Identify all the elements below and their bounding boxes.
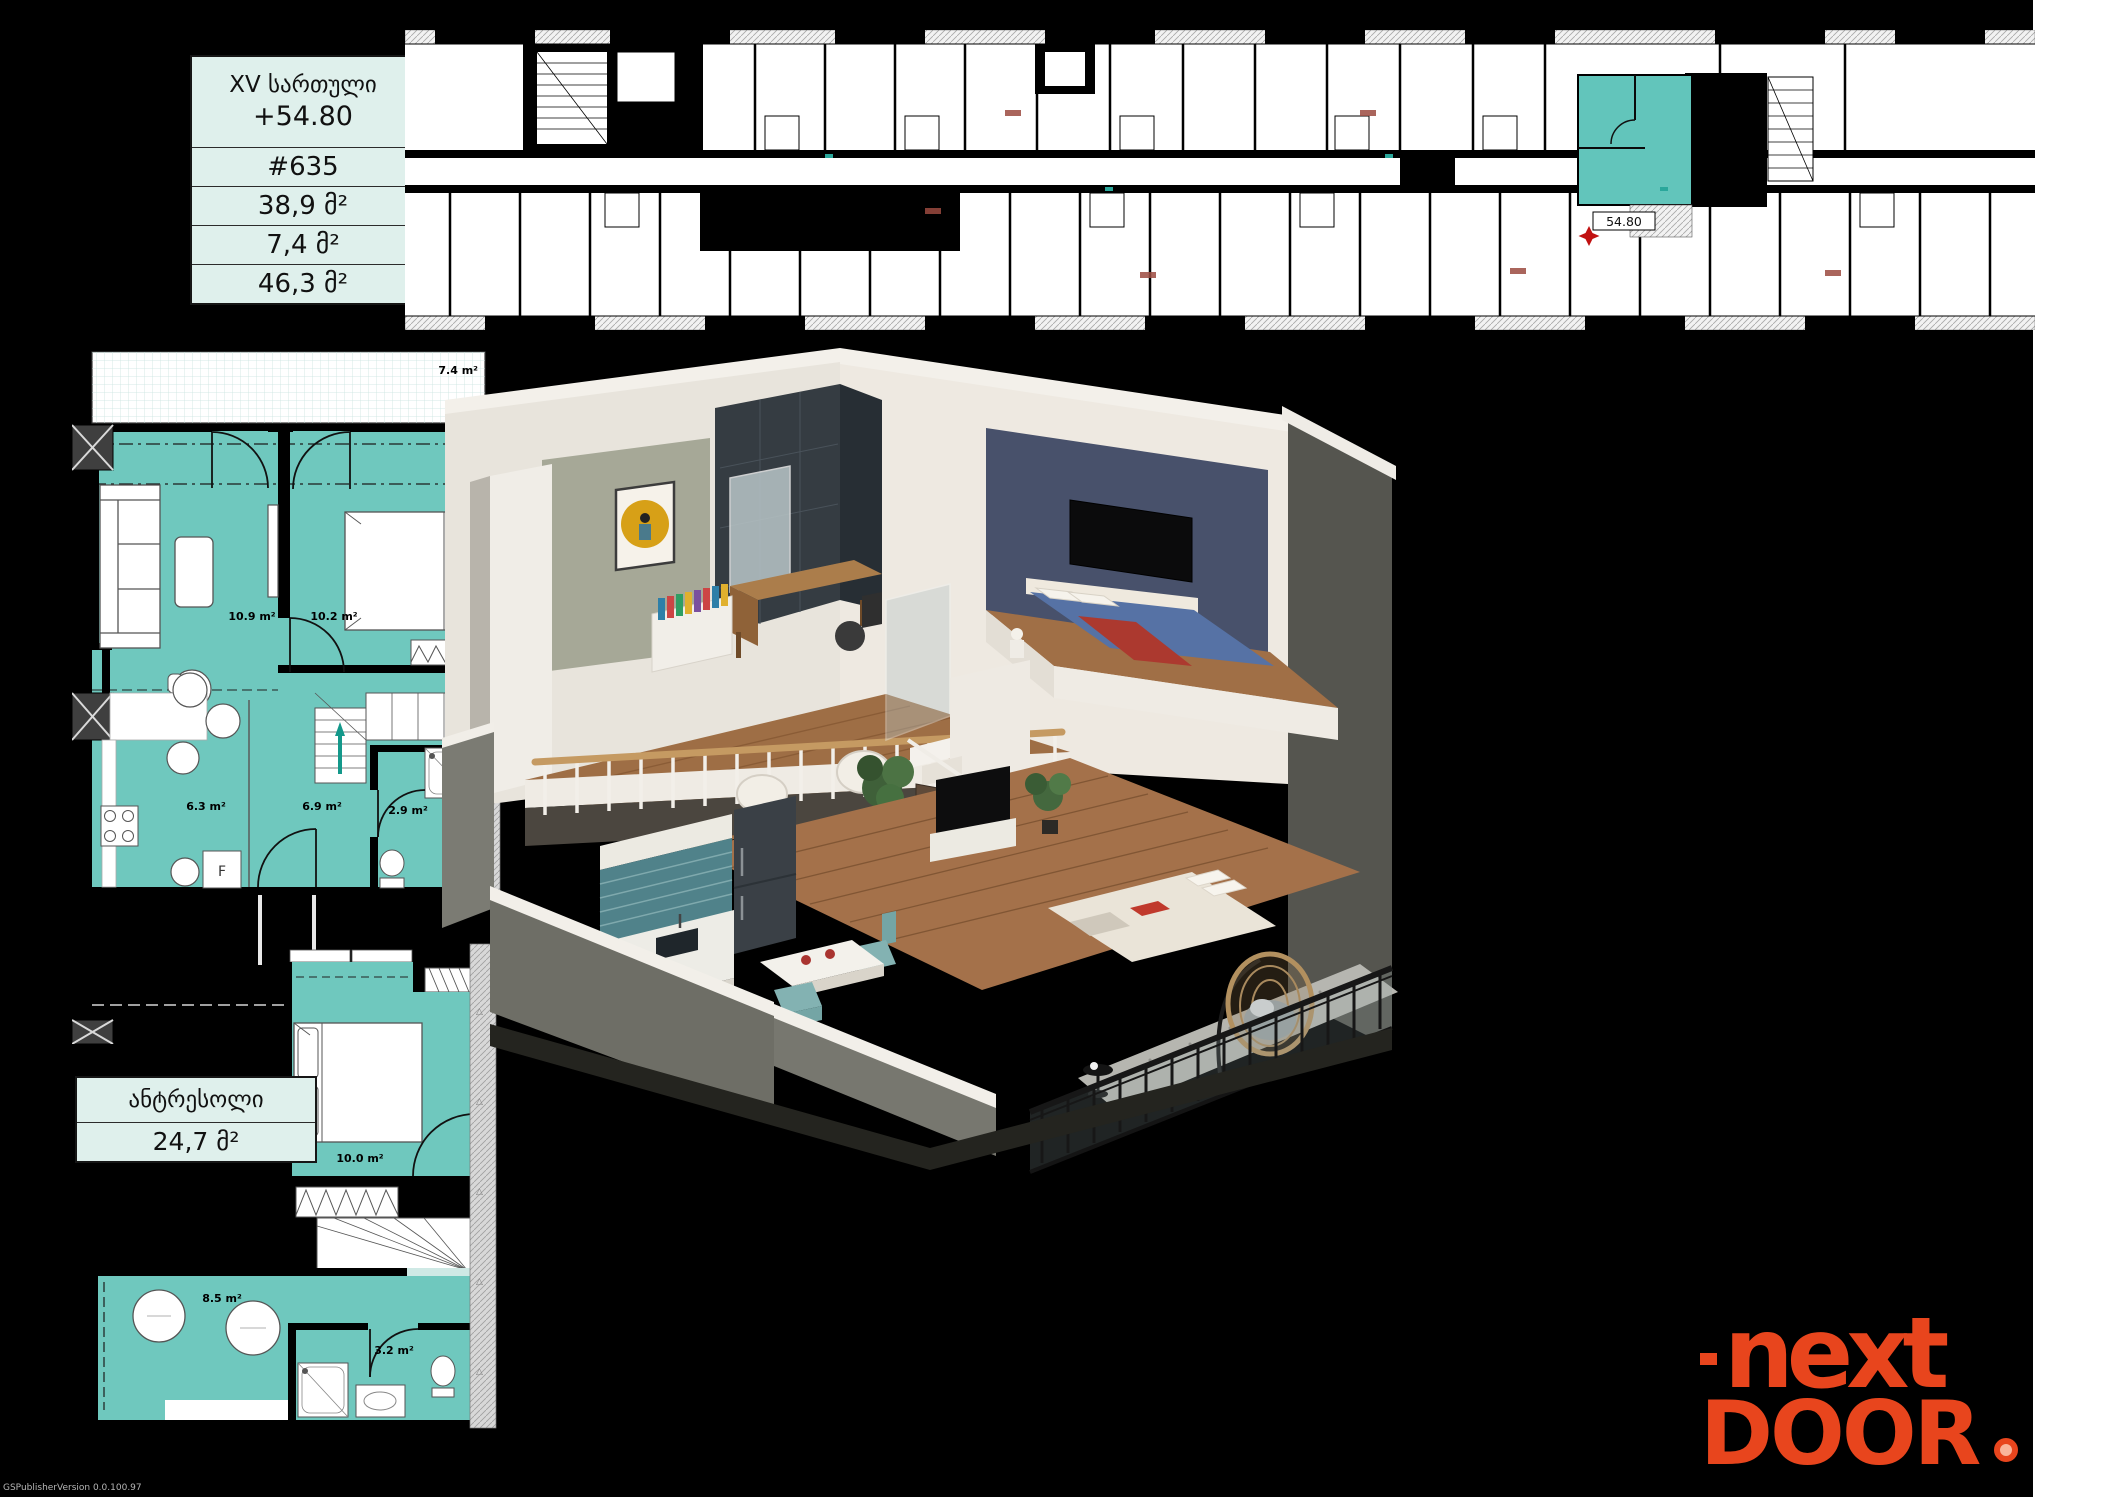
fridge-3d [734,796,796,954]
tv-console [268,505,278,597]
floor-label: XV სართული [229,70,377,100]
stove [101,806,138,846]
mezz-top-windows [290,950,412,962]
bath-area-label: 2.9 m² [388,804,428,817]
spec-row-floor: XV სართული +54.80 [192,57,414,147]
elevation-value: +54.80 [253,100,353,134]
svg-text:△: △ [476,1367,483,1377]
svg-text:△: △ [476,1277,483,1287]
mezz-hall-area-label: 8.5 m² [202,1292,242,1305]
mezz-shower [298,1363,348,1417]
mezz-stairs [317,1218,472,1274]
hall-area-label: 6.9 m² [302,800,342,813]
sofa [100,485,160,648]
bedroom-area-label: 10.2 m² [310,610,357,623]
building-floor-plan: 54.80 [405,30,2035,330]
svg-text:△: △ [476,1187,483,1197]
mezz-bath-area-label: 3.2 m² [374,1344,414,1357]
fridge: F [203,851,241,888]
nextdoor-logo: next DOOR [1700,1312,2018,1472]
mezzanine-area: 24,7 მ² [77,1123,315,1161]
kitchen-sink [171,858,199,886]
archicad-watermark: GSPublisherVersion 0.0.100.97 [3,1483,142,1493]
coffee-table [175,537,213,607]
unit-number: #635 [192,147,414,186]
area-total: 46,3 მ² [192,264,414,303]
mezzanine-title: ანტრესოლი [77,1078,315,1123]
flyer-canvas: XV სართული +54.80 #635 38,9 მ² 7,4 მ² 46… [0,0,2117,1497]
toilet [380,850,404,888]
glass-partition [886,584,950,740]
mezz-bedroom-area-label: 10.0 m² [336,1152,383,1165]
kitchen-area-label: 6.3 m² [186,800,226,813]
page-margin-strip [2033,0,2117,1497]
mezz-toilet [431,1356,455,1397]
logo-dash-icon [1700,1353,1717,1365]
fridge-label: F [218,864,226,880]
area-main: 38,9 მ² [192,186,414,225]
apartment-3d-render [430,348,1400,1178]
logo-text-door: DOOR [1700,1396,1978,1472]
balcony: 7.4 m² [92,352,485,423]
unit-spec-table: XV სართული +54.80 #635 38,9 მ² 7,4 მ² 46… [190,55,416,305]
mezz-sink [356,1385,405,1417]
balcony-3d [1030,954,1398,1172]
living-area-label: 10.9 m² [228,610,275,623]
mezz-closet [296,1187,398,1217]
bathroom-mirror [730,466,790,592]
mezzanine-table: ანტრესოლი 24,7 მ² [75,1076,317,1163]
area-balcony: 7,4 მ² [192,225,414,264]
logo-line-2: DOOR [1700,1396,2018,1472]
lower-tv [930,766,1016,862]
logo-dot-icon [1994,1438,2018,1462]
elevation-marker-label: 54.80 [1606,214,1642,229]
